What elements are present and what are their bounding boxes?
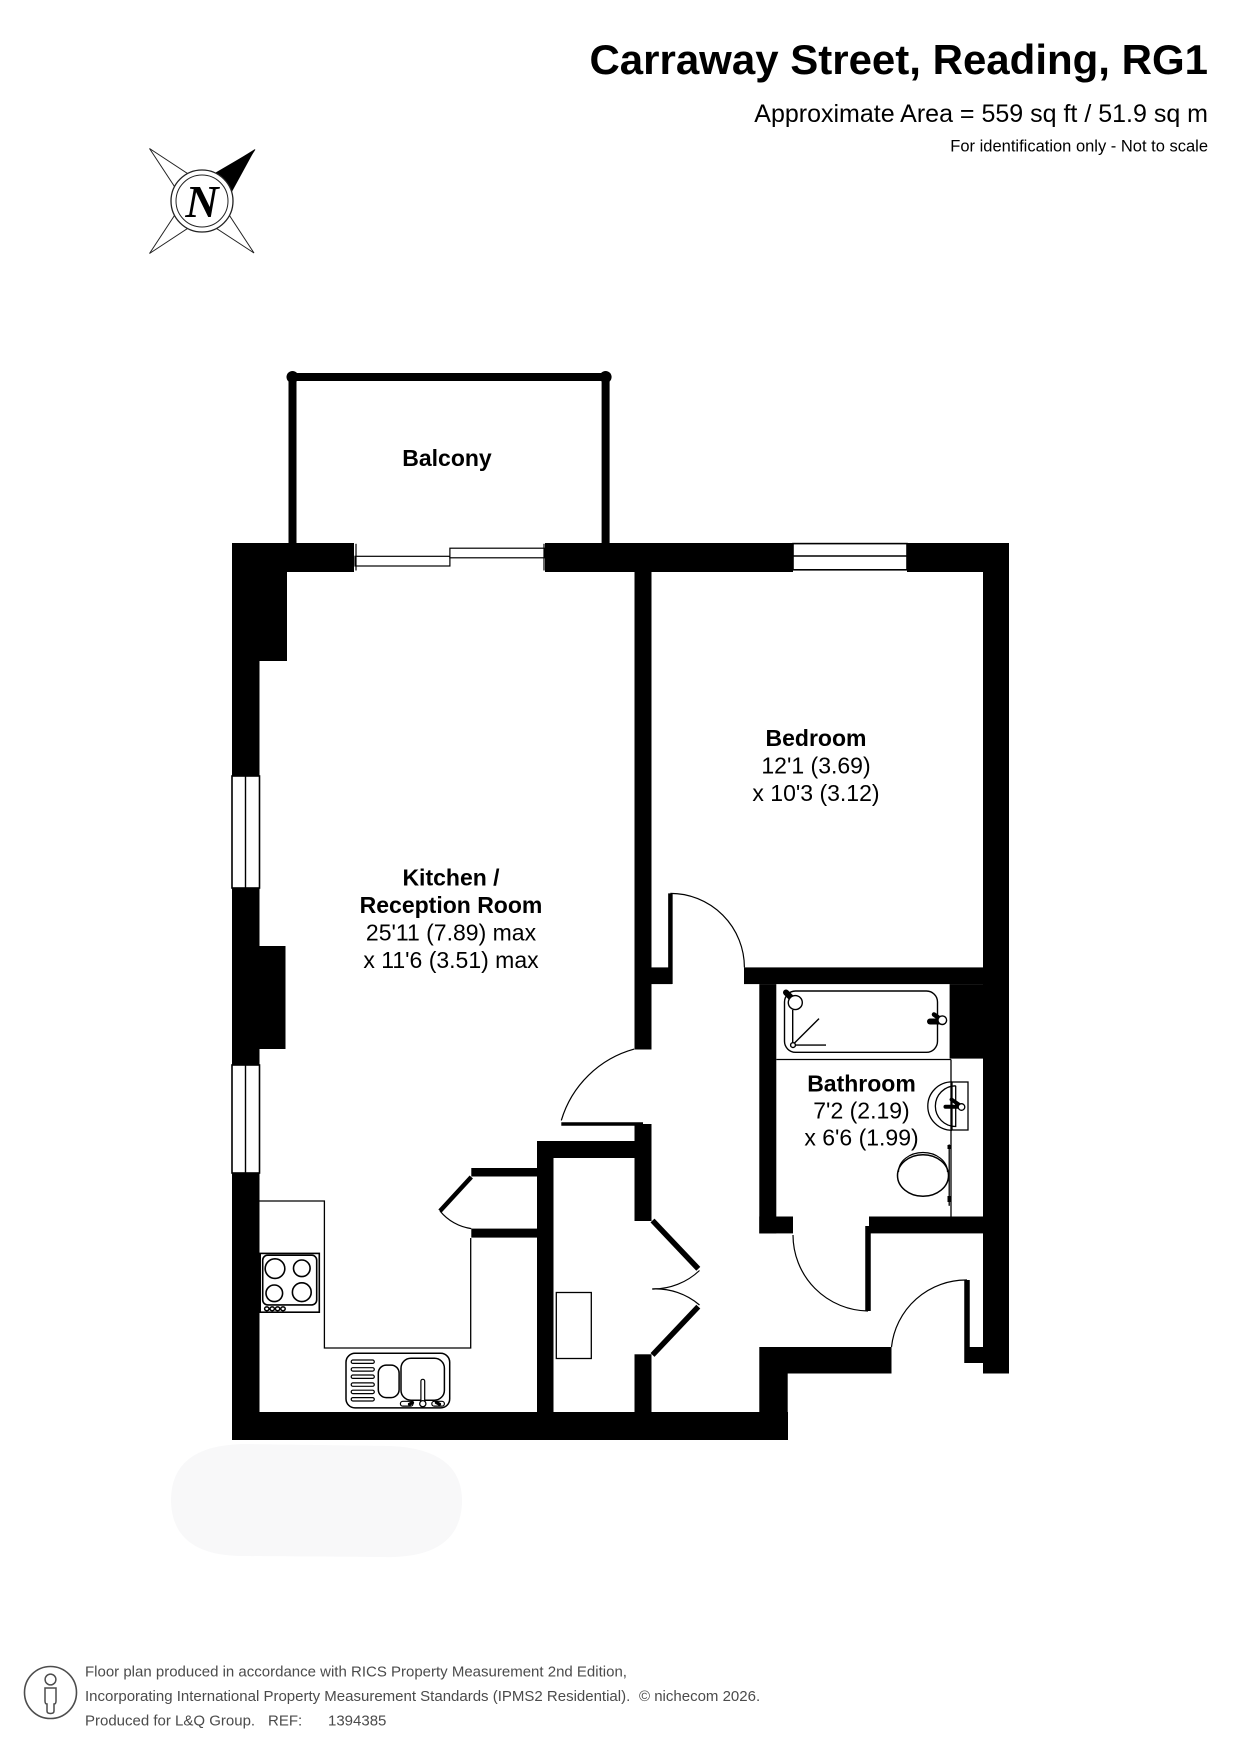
svg-text:Balcony: Balcony <box>402 445 492 471</box>
svg-text:For identification only - Not: For identification only - Not to scale <box>950 138 1208 156</box>
svg-text:Approximate Area = 559 sq ft /: Approximate Area = 559 sq ft / 51.9 sq m <box>754 100 1208 128</box>
svg-text:Carraway Street, Reading, RG1: Carraway Street, Reading, RG1 <box>589 36 1208 83</box>
svg-text:© nichecom 2026.: © nichecom 2026. <box>639 1688 760 1705</box>
svg-text:Produced for L&Q Group.: Produced for L&Q Group. <box>85 1713 255 1730</box>
svg-text:N: N <box>184 176 220 227</box>
svg-text:25'11 (7.89) max: 25'11 (7.89) max <box>366 920 537 946</box>
svg-text:12'1 (3.69): 12'1 (3.69) <box>761 753 870 779</box>
svg-text:1394385: 1394385 <box>328 1713 386 1730</box>
svg-text:x 11'6 (3.51) max: x 11'6 (3.51) max <box>363 947 539 973</box>
svg-text:Floor plan produced in accorda: Floor plan produced in accordance with R… <box>85 1664 627 1681</box>
svg-text:Incorporating International Pr: Incorporating International Property Mea… <box>85 1688 630 1705</box>
svg-text:Reception Room: Reception Room <box>360 892 543 918</box>
svg-text:x 10'3 (3.12): x 10'3 (3.12) <box>752 780 879 806</box>
svg-text:Kitchen /: Kitchen / <box>402 865 500 891</box>
svg-text:REF:: REF: <box>268 1713 302 1730</box>
svg-text:Bedroom: Bedroom <box>766 725 867 751</box>
svg-text:x 6'6 (1.99): x 6'6 (1.99) <box>804 1125 918 1151</box>
svg-text:Bathroom: Bathroom <box>807 1071 916 1097</box>
svg-text:7'2 (2.19): 7'2 (2.19) <box>813 1098 909 1124</box>
